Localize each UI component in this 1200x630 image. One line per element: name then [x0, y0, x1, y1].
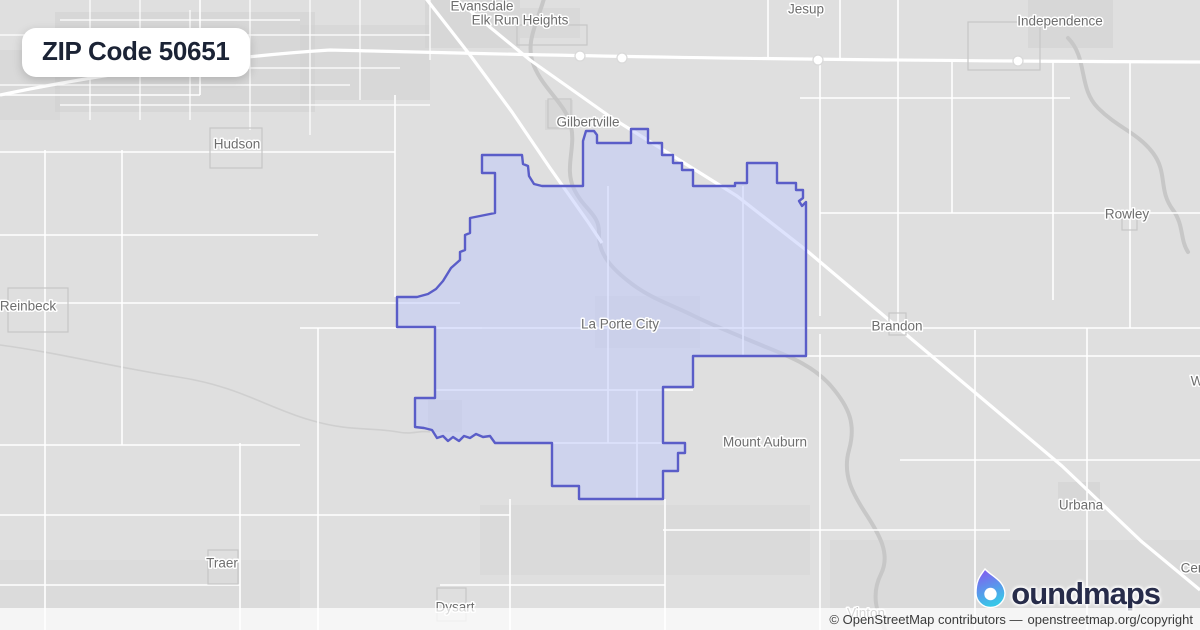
highway-interchange [813, 55, 823, 65]
map-label: Jesup [788, 2, 824, 17]
map-label: Reinbeck [0, 299, 56, 314]
zip-title-badge: ZIP Code 50651 [22, 28, 250, 77]
map-label: La Porte City [581, 317, 659, 332]
map-label: Mount Auburn [723, 435, 807, 450]
urban-patch [480, 505, 810, 575]
map-label: Elk Run Heights [472, 13, 569, 28]
map-label: Gilbertville [556, 115, 619, 130]
highway-interchange [575, 51, 585, 61]
attribution-copyright-link[interactable]: openstreetmap.org/copyright [1028, 612, 1193, 627]
map-label: Hudson [214, 137, 261, 152]
map-label: Evansdale [450, 0, 513, 14]
map-label: Urbana [1059, 498, 1104, 513]
attribution-text: © OpenStreetMap contributors — [829, 612, 1022, 627]
zip-title: ZIP Code 50651 [42, 36, 230, 66]
highway-interchange [1013, 56, 1023, 66]
map-svg: EvansdaleElk Run HeightsJesupIndependenc… [0, 0, 1200, 630]
map-label: Brandon [871, 319, 922, 334]
boundmaps-logo-mark [973, 567, 1009, 609]
map-label: Traer [206, 556, 238, 571]
map-label: W [1191, 374, 1200, 389]
highway-interchange [617, 53, 627, 63]
map-label: Rowley [1105, 207, 1150, 222]
urban-patch [300, 25, 430, 100]
map-label: Cen [1181, 561, 1200, 576]
boundmaps-logo: oundmaps [973, 567, 1160, 609]
logo-wordmark: oundmaps [1011, 578, 1160, 609]
map-canvas[interactable]: EvansdaleElk Run HeightsJesupIndependenc… [0, 0, 1200, 630]
attribution-bar: © OpenStreetMap contributors — openstree… [0, 608, 1200, 630]
map-label: Independence [1017, 14, 1103, 29]
